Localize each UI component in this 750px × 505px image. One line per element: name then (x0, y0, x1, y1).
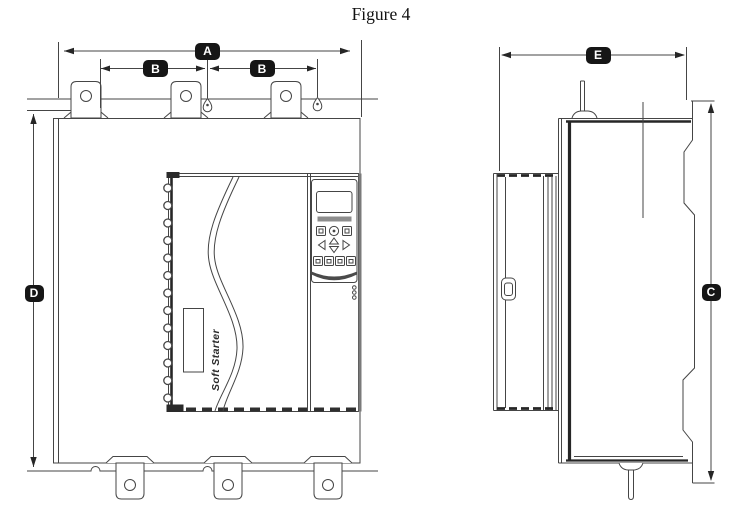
key-button (317, 227, 326, 236)
key-button (347, 257, 356, 266)
mounting-hole (281, 91, 292, 102)
side-view (494, 47, 715, 500)
mounting-hole (125, 480, 136, 491)
dimension-badge-b-left: B (143, 60, 168, 77)
brand-label: Soft Starter (210, 329, 222, 391)
key-button (314, 257, 323, 266)
side-dimensions (500, 47, 715, 481)
technical-drawing: Soft Starter (0, 0, 750, 505)
dimension-badge-e: E (586, 47, 611, 64)
figure-page: Figure 4 (0, 0, 750, 505)
dimension-badge-c: C (702, 284, 721, 301)
side-main-body (559, 119, 694, 464)
bottom-mounting-bolt (619, 463, 643, 500)
key-button (325, 257, 334, 266)
mounting-hole (181, 91, 192, 102)
key-button (336, 257, 345, 266)
key-button (343, 227, 352, 236)
keypad-slot (318, 217, 352, 222)
front-view: Soft Starter (27, 40, 378, 499)
dimension-badge-d: D (25, 285, 44, 302)
dimension-badge-a: A (195, 43, 220, 60)
led-indicator (353, 286, 357, 290)
bottom-mounting-tabs (106, 457, 352, 500)
led-indicator (353, 296, 357, 300)
mounting-hole (81, 91, 92, 102)
lcd-screen (317, 192, 353, 213)
mounting-hole (223, 480, 234, 491)
mounting-hole (323, 480, 334, 491)
dimension-badge-b-right: B (250, 60, 275, 77)
keypad (312, 180, 358, 300)
keyhole-screws (203, 98, 322, 112)
top-mounting-bolt (572, 81, 597, 118)
side-front-section (494, 174, 559, 411)
led-indicator (353, 291, 357, 295)
dimension-e (500, 47, 687, 171)
